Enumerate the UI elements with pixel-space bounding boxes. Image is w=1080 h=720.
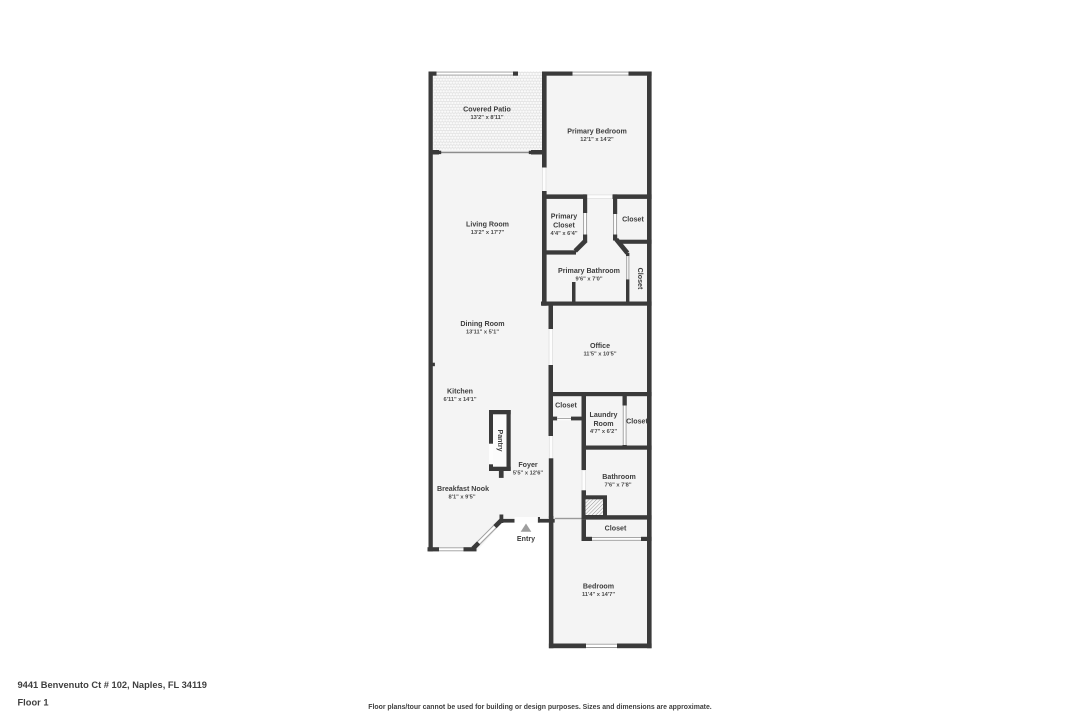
svg-text:Primary Bedroom: Primary Bedroom — [567, 128, 627, 136]
svg-text:12'1" x 14'2": 12'1" x 14'2" — [580, 137, 614, 143]
svg-text:Kitchen: Kitchen — [447, 388, 473, 396]
svg-text:Primary Bathroom: Primary Bathroom — [558, 267, 620, 275]
svg-text:13'11" x 5'1": 13'11" x 5'1" — [466, 330, 499, 336]
svg-text:Bathroom: Bathroom — [602, 473, 636, 481]
svg-text:5'5" x 12'6": 5'5" x 12'6" — [513, 471, 544, 477]
svg-text:Dining Room: Dining Room — [460, 320, 504, 328]
svg-text:9441 Benvenuto Ct # 102, Naple: 9441 Benvenuto Ct # 102, Naples, FL 3411… — [18, 680, 207, 690]
svg-text:Living Room: Living Room — [466, 221, 509, 229]
svg-text:6'11" x 14'1": 6'11" x 14'1" — [443, 397, 476, 403]
svg-text:Bedroom: Bedroom — [583, 583, 614, 591]
svg-text:Office: Office — [590, 342, 610, 350]
svg-text:4'4" x 6'4": 4'4" x 6'4" — [550, 231, 577, 237]
svg-text:Breakfast Nook: Breakfast Nook — [437, 485, 489, 493]
svg-text:Entry: Entry — [517, 535, 535, 543]
svg-text:Covered Patio: Covered Patio — [463, 106, 511, 114]
svg-text:Pantry: Pantry — [496, 429, 504, 451]
svg-text:Room: Room — [593, 420, 613, 428]
svg-text:Closet: Closet — [553, 221, 575, 229]
svg-text:Floor plans/tour cannot be use: Floor plans/tour cannot be used for buil… — [368, 704, 712, 711]
svg-text:Closet: Closet — [605, 525, 627, 533]
svg-text:Laundry: Laundry — [590, 411, 618, 419]
svg-text:4'7" x 6'2": 4'7" x 6'2" — [590, 429, 617, 435]
svg-text:Primary: Primary — [551, 213, 577, 221]
svg-text:7'6" x 7'8": 7'6" x 7'8" — [604, 483, 631, 489]
svg-text:11'5" x 10'5": 11'5" x 10'5" — [583, 351, 616, 357]
svg-text:Closet: Closet — [626, 418, 648, 426]
svg-text:Closet: Closet — [555, 402, 577, 410]
svg-text:Closet: Closet — [636, 268, 644, 290]
svg-text:11'4" x 14'7": 11'4" x 14'7" — [582, 592, 615, 598]
svg-text:9'6" x 7'0": 9'6" x 7'0" — [575, 276, 602, 282]
svg-text:Foyer: Foyer — [518, 461, 538, 469]
svg-text:Floor 1: Floor 1 — [18, 698, 49, 708]
svg-text:13'2" x 8'11": 13'2" x 8'11" — [470, 115, 503, 121]
svg-text:8'1" x 9'5": 8'1" x 9'5" — [448, 495, 475, 501]
svg-text:Closet: Closet — [622, 216, 644, 224]
svg-text:13'2" x 17'7": 13'2" x 17'7" — [471, 230, 505, 236]
